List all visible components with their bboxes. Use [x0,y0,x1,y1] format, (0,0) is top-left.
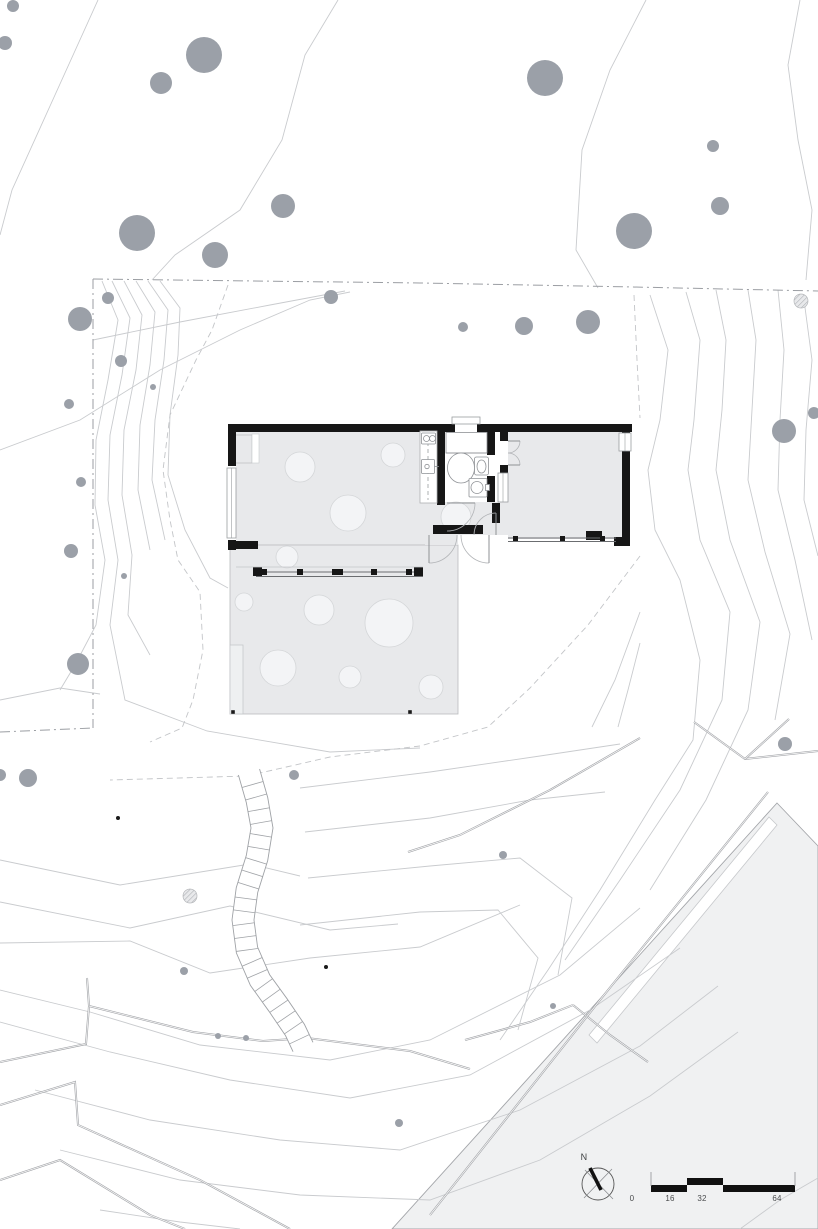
tree [150,72,172,94]
wall [228,432,236,466]
wall [228,540,236,550]
scale-label-16: 16 [665,1194,674,1203]
neighbor-area [392,803,818,1229]
retaining-wall [408,738,640,852]
retaining-wall [0,1160,185,1229]
threshold-dot [231,710,235,714]
tree [76,477,86,487]
tree [202,242,228,268]
glazing-block [253,567,262,576]
tree [324,290,338,304]
contour-line [0,688,100,700]
floor-circle [365,599,413,647]
survey-point [116,816,120,820]
shrub-dot [243,1035,249,1041]
skylight-gap [455,423,477,433]
tree [808,407,818,419]
shrub-dot [499,851,507,859]
tree [772,419,796,443]
contour-line [565,292,730,960]
contour-line [308,858,572,975]
retaining-wall [465,1005,573,1040]
contour-line [305,792,605,832]
shower-closet [446,433,487,454]
retaining-wall [694,722,818,759]
wall [500,424,508,441]
door-arc [461,535,489,563]
contour-line [650,290,760,890]
contour-line [618,643,640,727]
contour-line [100,1210,240,1229]
contour-line [122,281,150,655]
floor-circle [276,546,298,568]
tree [150,384,156,390]
site-plan-page: N 0 16 32 64 [0,0,818,1229]
retaining-wall-core [0,978,89,1062]
scale-label-32: 32 [697,1194,706,1203]
tree [271,194,295,218]
contour-line [0,908,640,1060]
contour-line [136,281,155,550]
contour-line [788,0,812,280]
bath-sink-basin [471,482,483,494]
floor-circle [330,495,366,531]
contour-line [93,291,345,340]
burner [424,436,430,442]
burner [430,436,436,442]
floor-slab [230,645,243,714]
retaining-wall-core [0,1082,290,1229]
tree [64,544,78,558]
floor-circle [419,675,443,699]
stair-band [232,769,313,1052]
boundary-line [93,279,818,291]
floor-circle [260,650,296,686]
mullion [297,569,303,575]
contour-line [148,281,168,540]
tree [19,769,37,787]
tree [0,769,6,781]
floor-slab [508,432,622,539]
floor-circle [304,595,334,625]
contour-line [0,902,398,930]
tree [707,140,719,152]
floor-circle [381,443,405,467]
mullion [513,536,518,541]
mullion [560,536,565,541]
setback-line [634,295,640,418]
tree [458,322,468,332]
north-label: N [581,1152,588,1162]
wall [586,531,602,540]
survey-point [324,965,328,969]
contour-line [152,0,338,280]
shrub-dot [778,737,792,751]
scale-bar-segment [723,1185,795,1192]
stair-path [232,769,313,1052]
contour-line [300,744,620,788]
tree [68,307,92,331]
mullion [332,569,343,575]
retaining-wall [0,978,89,1062]
tree [289,770,299,780]
tree [67,653,89,675]
floor-slab [425,533,458,545]
toilet-tank-lid [477,460,486,473]
tree [0,36,12,50]
shrub-dot [180,967,188,975]
shrub-dot [550,1003,556,1009]
wall [614,537,630,546]
boundary-line [0,728,93,732]
threshold-dot [408,710,412,714]
shrub-dot [395,1119,403,1127]
contour-line [0,0,98,235]
mullion [371,569,377,575]
contour-line [778,290,812,640]
mullion [600,536,605,541]
floor-circle [285,452,315,482]
site-plan-canvas [0,0,818,1229]
glazing-block [414,567,423,576]
kitchen-sink-drain [425,464,429,468]
tree [711,197,729,215]
scale-label-64: 64 [772,1194,781,1203]
floor-circle [339,666,361,688]
tree [119,215,155,251]
contour-line [804,300,818,556]
tree [186,37,222,73]
mullion [406,569,412,575]
wall [500,465,508,473]
tree [64,399,74,409]
tree [102,292,114,304]
skylight-frame [452,417,480,424]
scale-label-0: 0 [630,1194,635,1203]
contour-line [300,910,538,1030]
tree [515,317,533,335]
shrub-dot [215,1033,221,1039]
contour-line [160,281,228,588]
wall-sliver [252,434,259,463]
tree-hatched [794,294,808,308]
tree [527,60,563,96]
setback-line [150,285,228,742]
contour-line [60,281,118,690]
floor-circle [235,593,253,611]
bath-faucet [486,485,490,491]
scale-bar-segment [687,1178,723,1185]
tree-hatched [183,889,197,903]
wall [236,541,258,549]
tree [7,0,19,12]
tree [616,213,652,249]
shrub-dot [121,573,127,579]
tree [115,355,127,367]
retaining-wall-core [408,738,640,852]
wall [487,432,495,455]
scale-bar-segment [651,1185,687,1192]
tree [576,310,600,334]
